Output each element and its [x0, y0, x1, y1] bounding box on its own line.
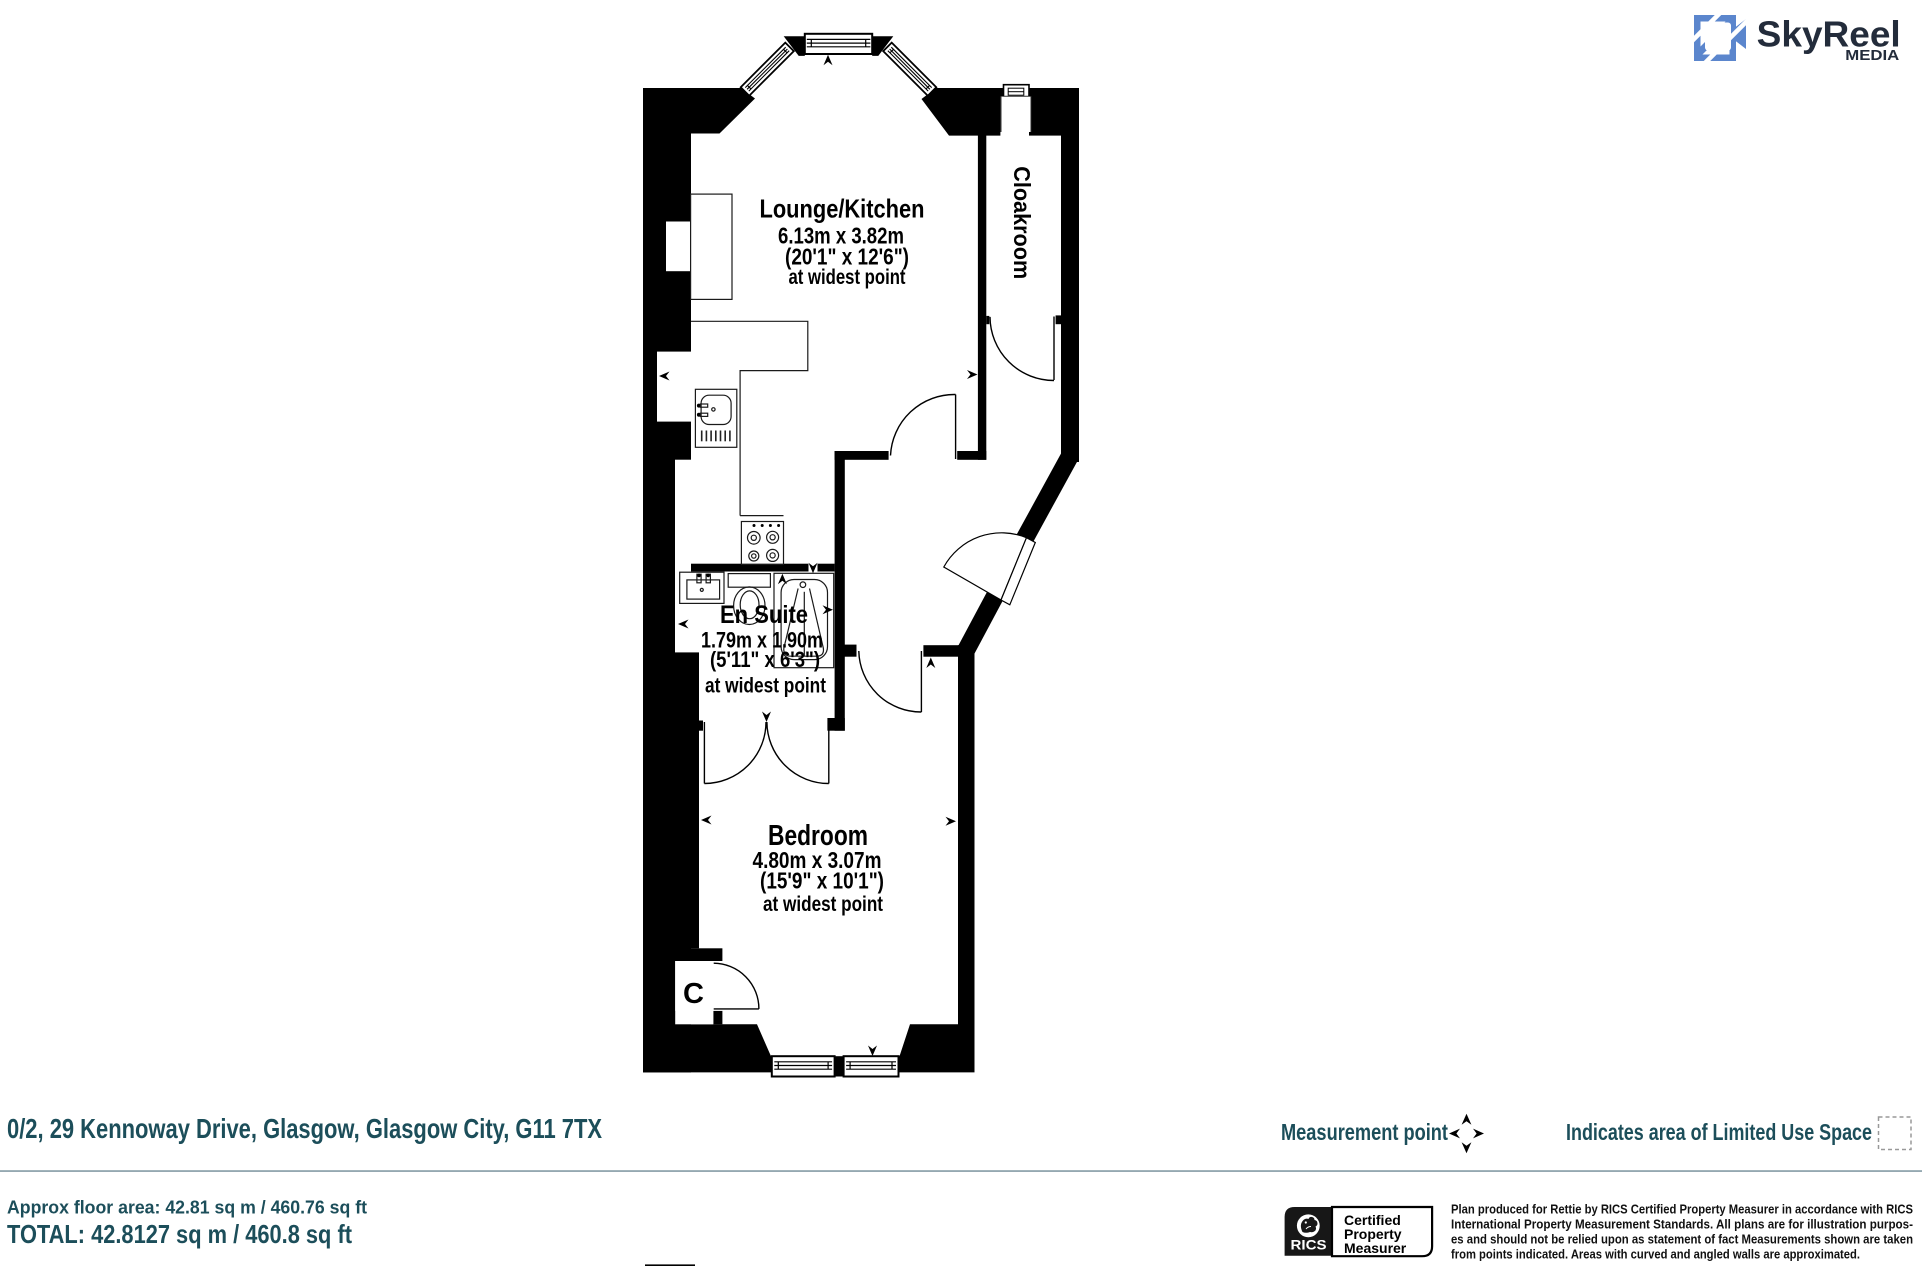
- svg-text:Approx floor area: 42.81 sq m: Approx floor area: 42.81 sq m / 460.76 s…: [7, 1197, 367, 1218]
- svg-text:En Suite: En Suite: [720, 601, 808, 629]
- svg-text:Plan produced for Rettie by RI: Plan produced for Rettie by RICS Certifi…: [1451, 1202, 1913, 1217]
- svg-text:(15'9" x 10'1"): (15'9" x 10'1"): [760, 868, 884, 894]
- svg-text:es and should not be relied up: es and should not be relied upon as stat…: [1451, 1232, 1913, 1247]
- svg-text:International Property Measur: International Property Measurement Stand…: [1451, 1217, 1913, 1232]
- svg-text:Cloakroom: Cloakroom: [1009, 166, 1035, 279]
- svg-text:0/2, 29 Kennoway Drive, Glasgo: 0/2, 29 Kennoway Drive, Glasgow, Glasgow…: [7, 1113, 603, 1144]
- svg-text:C: C: [683, 978, 704, 1010]
- svg-text:MEDIA: MEDIA: [1845, 47, 1899, 64]
- svg-text:Indicates area of Limited Use: Indicates area of Limited Use Space: [1566, 1119, 1872, 1145]
- svg-text:from points indicated. Areas w: from points indicated. Areas with curved…: [1451, 1247, 1860, 1262]
- svg-text:at widest point: at widest point: [763, 893, 883, 916]
- svg-text:TOTAL: 42.8127 sq m / 460.8 sq: TOTAL: 42.8127 sq m / 460.8 sq ft: [7, 1219, 352, 1249]
- svg-text:Measurement point: Measurement point: [1281, 1119, 1448, 1145]
- svg-text:at widest point: at widest point: [705, 675, 826, 698]
- svg-text:Lounge/Kitchen: Lounge/Kitchen: [760, 194, 925, 224]
- svg-text:at widest point: at widest point: [789, 266, 906, 289]
- svg-text:Measurer: Measurer: [1344, 1240, 1407, 1256]
- svg-text:(5'11" x 6'3"): (5'11" x 6'3"): [710, 647, 820, 672]
- svg-text:RICS: RICS: [1291, 1237, 1327, 1253]
